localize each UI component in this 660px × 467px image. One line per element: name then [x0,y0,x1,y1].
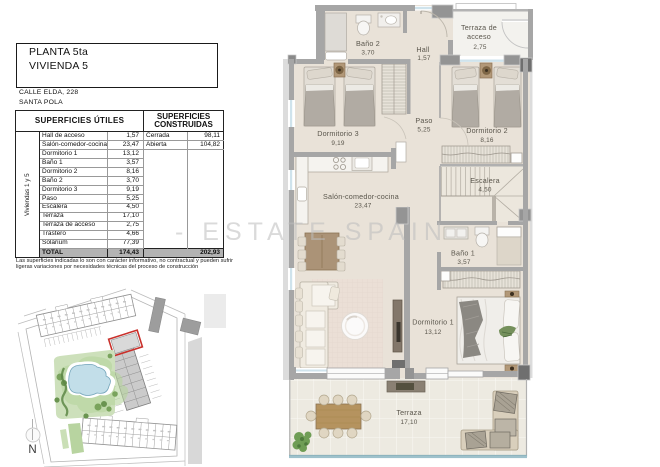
svg-text:Hall: Hall [416,45,429,54]
svg-text:3,57: 3,57 [457,259,470,266]
svg-text:Salón-comedor-cocina: Salón-comedor-cocina [323,192,399,201]
svg-text:Baño 2: Baño 2 [356,39,380,48]
svg-text:2,75: 2,75 [473,44,486,51]
svg-text:3,70: 3,70 [361,50,374,57]
svg-text:13,12: 13,12 [425,329,442,336]
svg-text:8,16: 8,16 [480,137,493,144]
svg-text:9,19: 9,19 [331,140,344,147]
svg-text:5,25: 5,25 [417,127,430,134]
svg-text:23,47: 23,47 [355,203,372,210]
svg-text:1,57: 1,57 [417,55,430,62]
svg-text:Dormitorio 1: Dormitorio 1 [412,318,454,327]
svg-text:acceso: acceso [467,32,491,41]
svg-text:Terraza: Terraza [396,408,421,417]
svg-text:17,10: 17,10 [401,419,418,426]
svg-text:Escalera: Escalera [470,176,500,185]
svg-text:Baño 1: Baño 1 [451,249,475,258]
svg-text:Paso: Paso [415,116,432,125]
svg-text:4,50: 4,50 [478,187,491,194]
svg-text:Dormitorio 2: Dormitorio 2 [466,126,508,135]
svg-text:Terraza de: Terraza de [461,23,497,32]
svg-text:Dormitorio 3: Dormitorio 3 [317,129,359,138]
svg-text:N: N [28,444,36,456]
